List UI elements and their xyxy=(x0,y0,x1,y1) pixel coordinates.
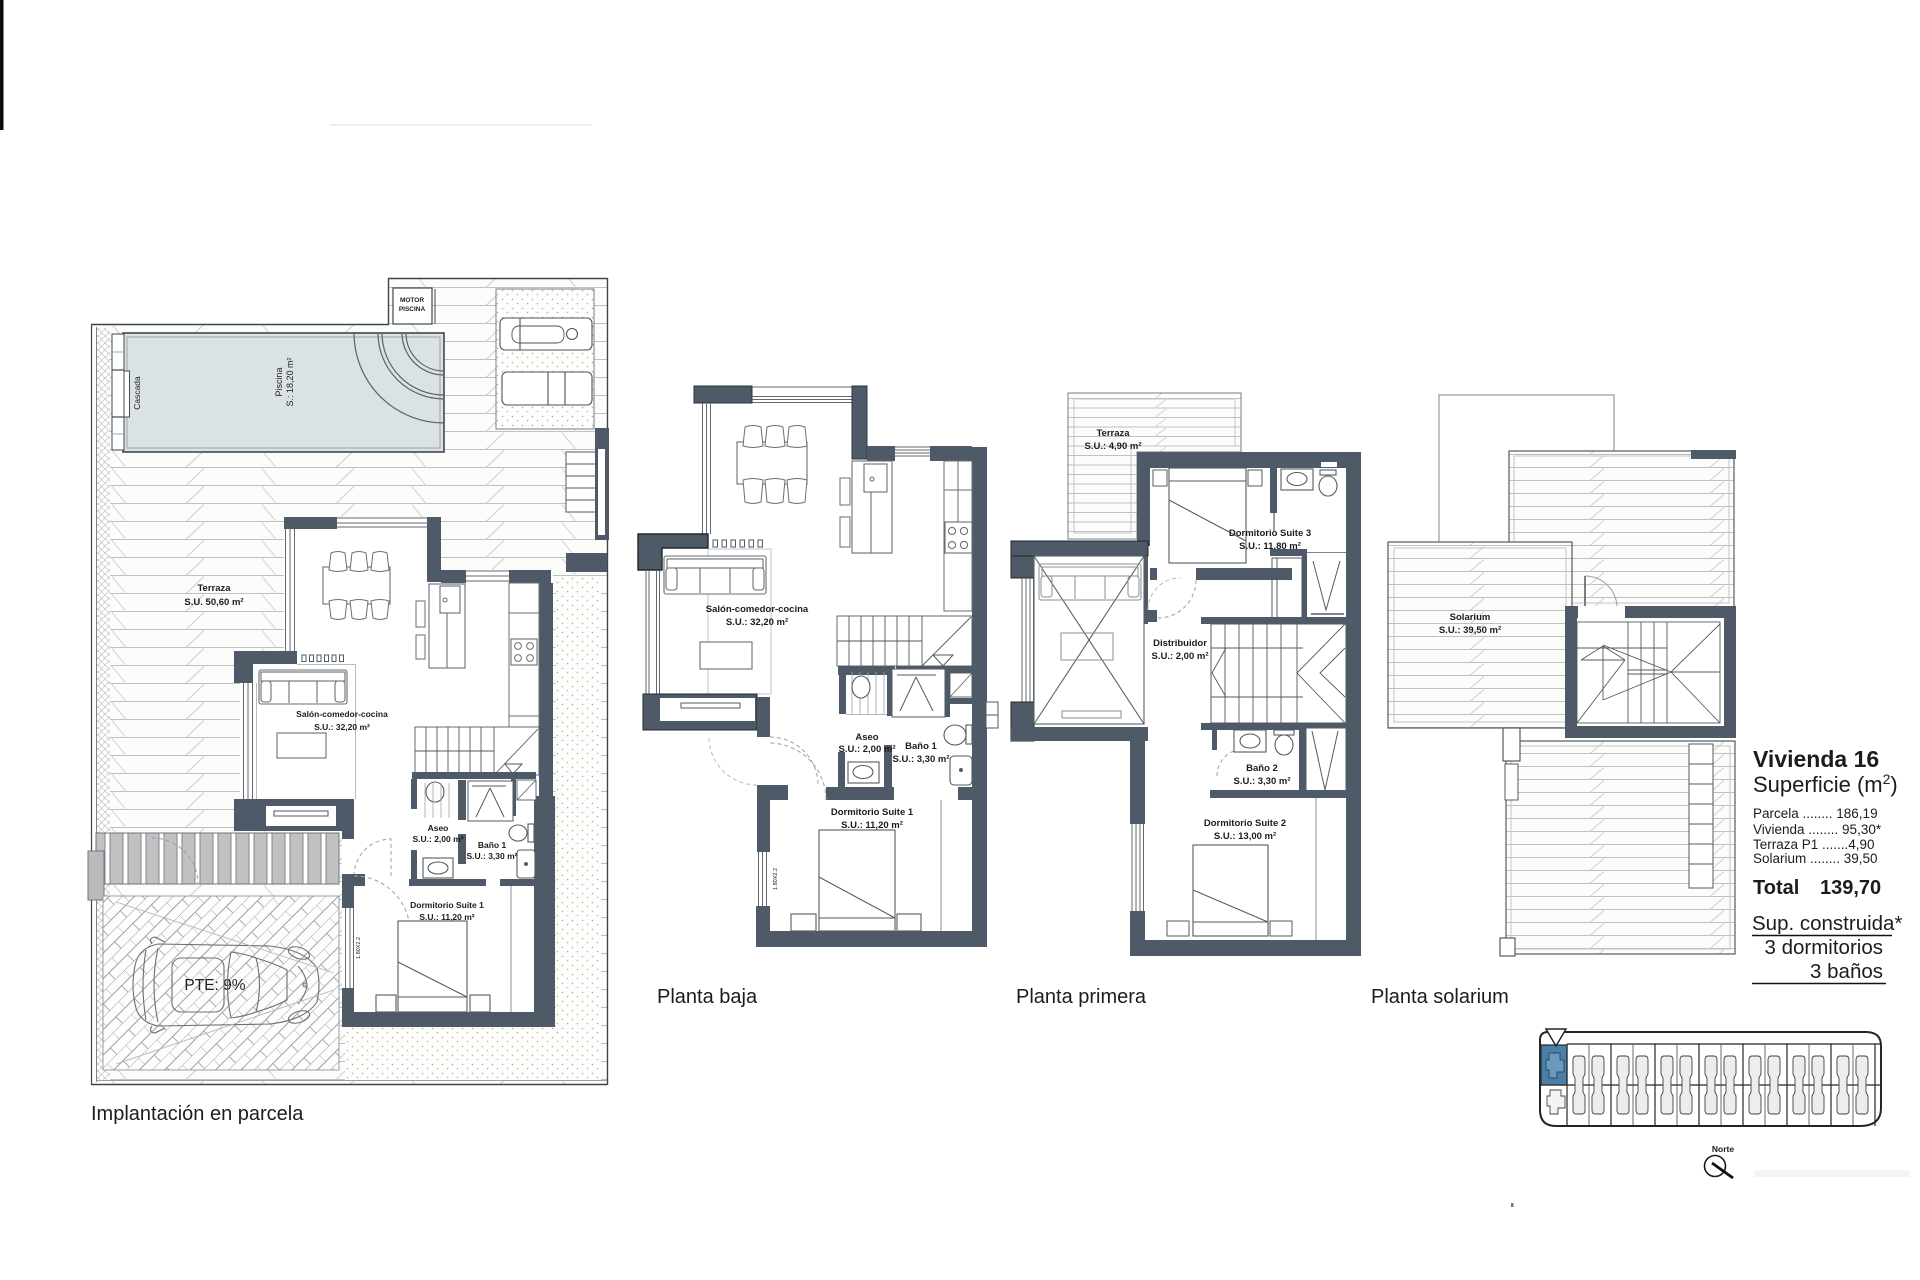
svg-text:Solarium: Solarium xyxy=(1450,612,1491,623)
svg-text:3 baños: 3 baños xyxy=(1810,960,1883,983)
svg-text:Total: Total xyxy=(1753,877,1799,899)
svg-text:S.U. 50,60 m²: S.U. 50,60 m² xyxy=(184,597,243,608)
svg-text:Superficie (m2): Superficie (m2) xyxy=(1753,771,1898,797)
svg-text:Dormitorio Suite 1: Dormitorio Suite 1 xyxy=(831,807,914,818)
svg-text:S.U.: 2,00 m²: S.U.: 2,00 m² xyxy=(1151,651,1208,662)
svg-text:S.U.: 11,20 m²: S.U.: 11,20 m² xyxy=(841,820,903,831)
svg-text:Vivienda 16: Vivienda 16 xyxy=(1753,746,1879,772)
svg-text:Planta solarium: Planta solarium xyxy=(1371,986,1509,1008)
svg-text:Aseo: Aseo xyxy=(428,823,449,833)
svg-text:3 dormitorios: 3 dormitorios xyxy=(1765,936,1884,959)
svg-text:Dormitorio Suite 1: Dormitorio Suite 1 xyxy=(410,900,484,910)
svg-text:Terraza: Terraza xyxy=(197,583,231,594)
svg-text:139,70: 139,70 xyxy=(1820,877,1881,899)
svg-text:Parcela ........ 186,19: Parcela ........ 186,19 xyxy=(1753,806,1878,821)
svg-text:PISCINA: PISCINA xyxy=(399,306,426,313)
svg-text:Aseo: Aseo xyxy=(855,732,878,743)
svg-text:Norte: Norte xyxy=(1712,1144,1734,1154)
svg-text:Salón-comedor-cocina: Salón-comedor-cocina xyxy=(706,604,809,615)
svg-text:Planta baja: Planta baja xyxy=(657,986,758,1008)
svg-text:PTE: 9%: PTE: 9% xyxy=(184,977,245,994)
svg-text:Solarium ........ 39,50: Solarium ........ 39,50 xyxy=(1753,851,1878,866)
svg-text:Distribuidor: Distribuidor xyxy=(1153,638,1207,649)
svg-text:Sup. construida*: Sup. construida* xyxy=(1752,912,1902,935)
svg-text:S.U.: 4,90 m²: S.U.: 4,90 m² xyxy=(1084,441,1141,452)
svg-text:1.80X2.2: 1.80X2.2 xyxy=(356,937,362,959)
svg-text:S.U.: 3,30 m²: S.U.: 3,30 m² xyxy=(1233,776,1290,787)
svg-text:Baño 1: Baño 1 xyxy=(905,741,937,752)
svg-text:Terraza P1 .......4,90: Terraza P1 .......4,90 xyxy=(1753,837,1875,852)
svg-text:Piscina: Piscina xyxy=(274,367,284,396)
svg-text:S.U.: 2,00 m²: S.U.: 2,00 m² xyxy=(838,744,895,755)
svg-text:Baño 1: Baño 1 xyxy=(478,840,507,850)
svg-text:S.U.: 32,20 m²: S.U.: 32,20 m² xyxy=(726,617,788,628)
svg-text:Planta primera: Planta primera xyxy=(1016,986,1147,1008)
svg-text:Cascada: Cascada xyxy=(132,376,142,410)
svg-text:Vivienda ........ 95,30*: Vivienda ........ 95,30* xyxy=(1753,822,1882,837)
svg-text:S.: 18,20 m²: S.: 18,20 m² xyxy=(285,357,295,406)
svg-text:MOTOR: MOTOR xyxy=(400,297,424,304)
svg-text:Dormitorio Suite 2: Dormitorio Suite 2 xyxy=(1204,818,1286,829)
svg-text:S.U.: 13,00 m²: S.U.: 13,00 m² xyxy=(1214,831,1276,842)
svg-text:S.U.: 39,50 m²: S.U.: 39,50 m² xyxy=(1439,625,1501,636)
svg-text:Salón-comedor-cocina: Salón-comedor-cocina xyxy=(296,709,388,719)
svg-text:Terraza: Terraza xyxy=(1096,428,1130,439)
svg-text:Implantación en parcela: Implantación en parcela xyxy=(91,1103,304,1125)
svg-text:S.U.: 2,00 m²: S.U.: 2,00 m² xyxy=(412,834,463,844)
svg-text:S.U.: 3,30 m²: S.U.: 3,30 m² xyxy=(466,851,517,861)
svg-text:S.U.: 32,20 m²: S.U.: 32,20 m² xyxy=(314,722,370,732)
svg-text:Dormitorio Suite 3: Dormitorio Suite 3 xyxy=(1229,528,1311,539)
svg-text:S.U.: 3,30 m²: S.U.: 3,30 m² xyxy=(892,754,949,765)
svg-text:Baño 2: Baño 2 xyxy=(1246,763,1278,774)
svg-text:1.80X2.2: 1.80X2.2 xyxy=(773,868,779,890)
